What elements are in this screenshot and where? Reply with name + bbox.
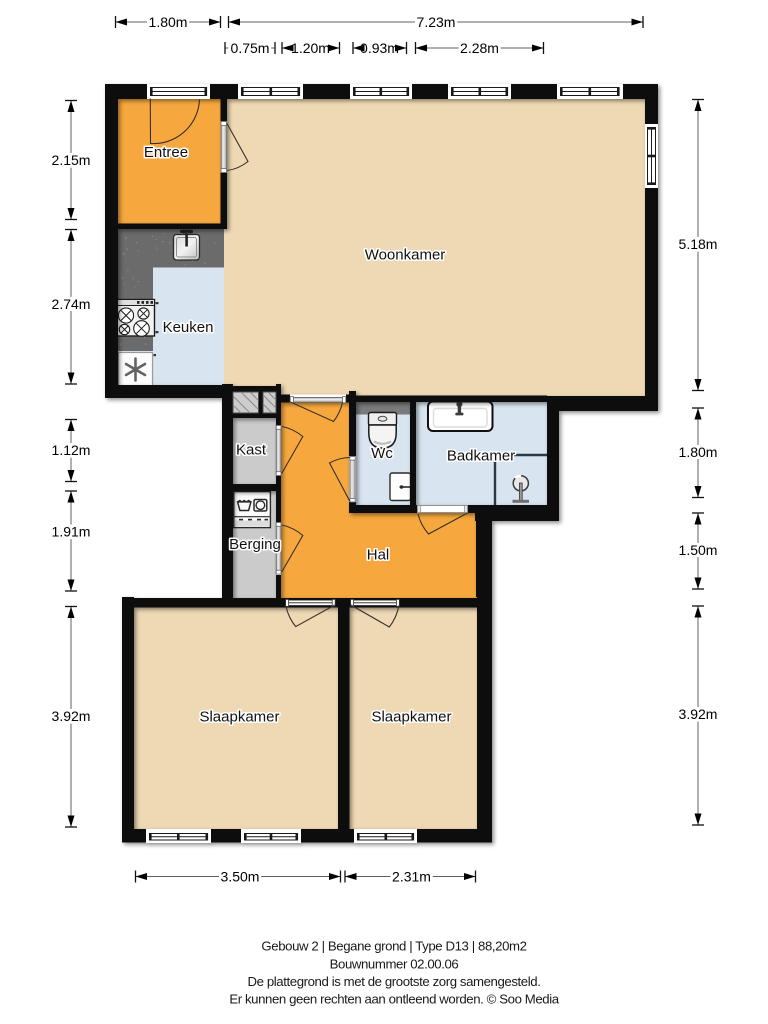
svg-text:7.23m: 7.23m [417, 14, 456, 30]
svg-text:Slaapkamer: Slaapkamer [199, 709, 279, 726]
svg-text:2.15m: 2.15m [52, 152, 91, 168]
svg-text:2.28m: 2.28m [460, 40, 499, 56]
svg-text:Er kunnen geen rechten aan ont: Er kunnen geen rechten aan ontleend word… [229, 992, 559, 1007]
svg-text:0.75m: 0.75m [231, 40, 270, 56]
svg-text:Berging: Berging [229, 536, 281, 553]
svg-text:1.80m: 1.80m [679, 444, 718, 460]
svg-text:1.91m: 1.91m [52, 524, 91, 540]
svg-text:1.12m: 1.12m [52, 442, 91, 458]
svg-text:1.80m: 1.80m [149, 14, 188, 30]
svg-text:Gebouw 2 | Begane grond | Type: Gebouw 2 | Begane grond | Type D13 | 88,… [261, 939, 526, 954]
svg-text:Woonkamer: Woonkamer [365, 247, 446, 264]
svg-text:Wc: Wc [371, 445, 393, 462]
svg-text:Keuken: Keuken [163, 319, 214, 336]
svg-text:Bouwnummer 02.00.06: Bouwnummer 02.00.06 [330, 957, 459, 972]
svg-text:2.31m: 2.31m [392, 869, 431, 885]
svg-text:5.18m: 5.18m [679, 236, 718, 252]
svg-text:Hal: Hal [367, 547, 390, 564]
svg-text:1.50m: 1.50m [679, 542, 718, 558]
svg-text:3.92m: 3.92m [679, 706, 718, 722]
svg-text:Kast: Kast [236, 442, 267, 459]
svg-text:2.74m: 2.74m [52, 296, 91, 312]
svg-text:0.93m: 0.93m [360, 40, 399, 56]
svg-text:De plattegrond is met de groot: De plattegrond is met de grootste zorg s… [248, 974, 541, 989]
svg-text:1.20m: 1.20m [291, 40, 330, 56]
svg-text:3.92m: 3.92m [52, 708, 91, 724]
svg-text:Slaapkamer: Slaapkamer [371, 709, 451, 726]
svg-text:3.50m: 3.50m [221, 869, 260, 885]
svg-text:Entree: Entree [144, 144, 188, 161]
svg-text:Badkamer: Badkamer [447, 448, 515, 465]
